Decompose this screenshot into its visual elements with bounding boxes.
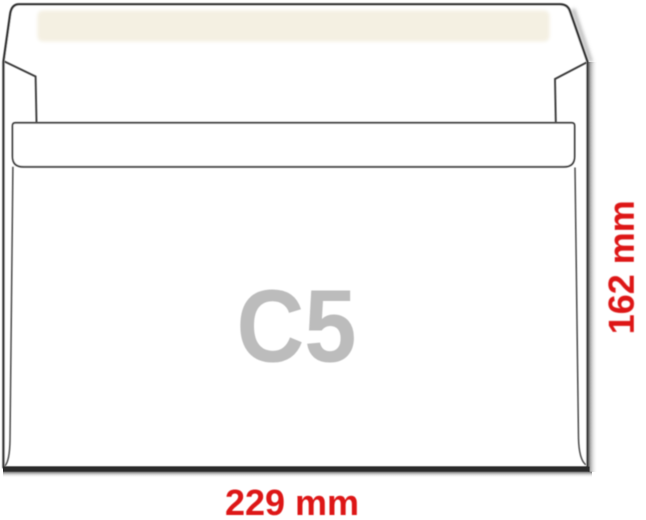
svg-text:229 mm: 229 mm <box>225 482 359 520</box>
svg-text:C5: C5 <box>236 269 356 384</box>
svg-text:162 mm: 162 mm <box>601 200 642 334</box>
